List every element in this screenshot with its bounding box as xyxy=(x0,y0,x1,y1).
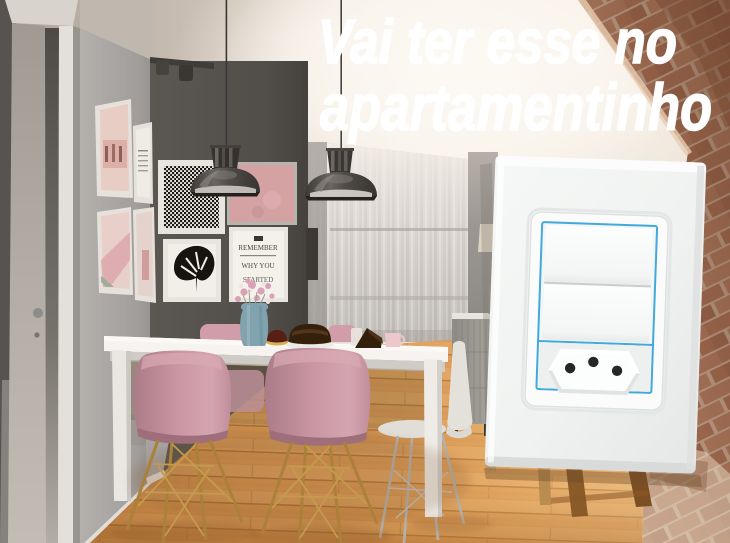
svg-text:apartamentinho: apartamentinho xyxy=(320,70,712,144)
svg-text:REMEMBER: REMEMBER xyxy=(238,244,278,252)
svg-text:Vai ter esse no: Vai ter esse no xyxy=(318,8,677,77)
svg-text:WHY YOU: WHY YOU xyxy=(241,262,274,270)
